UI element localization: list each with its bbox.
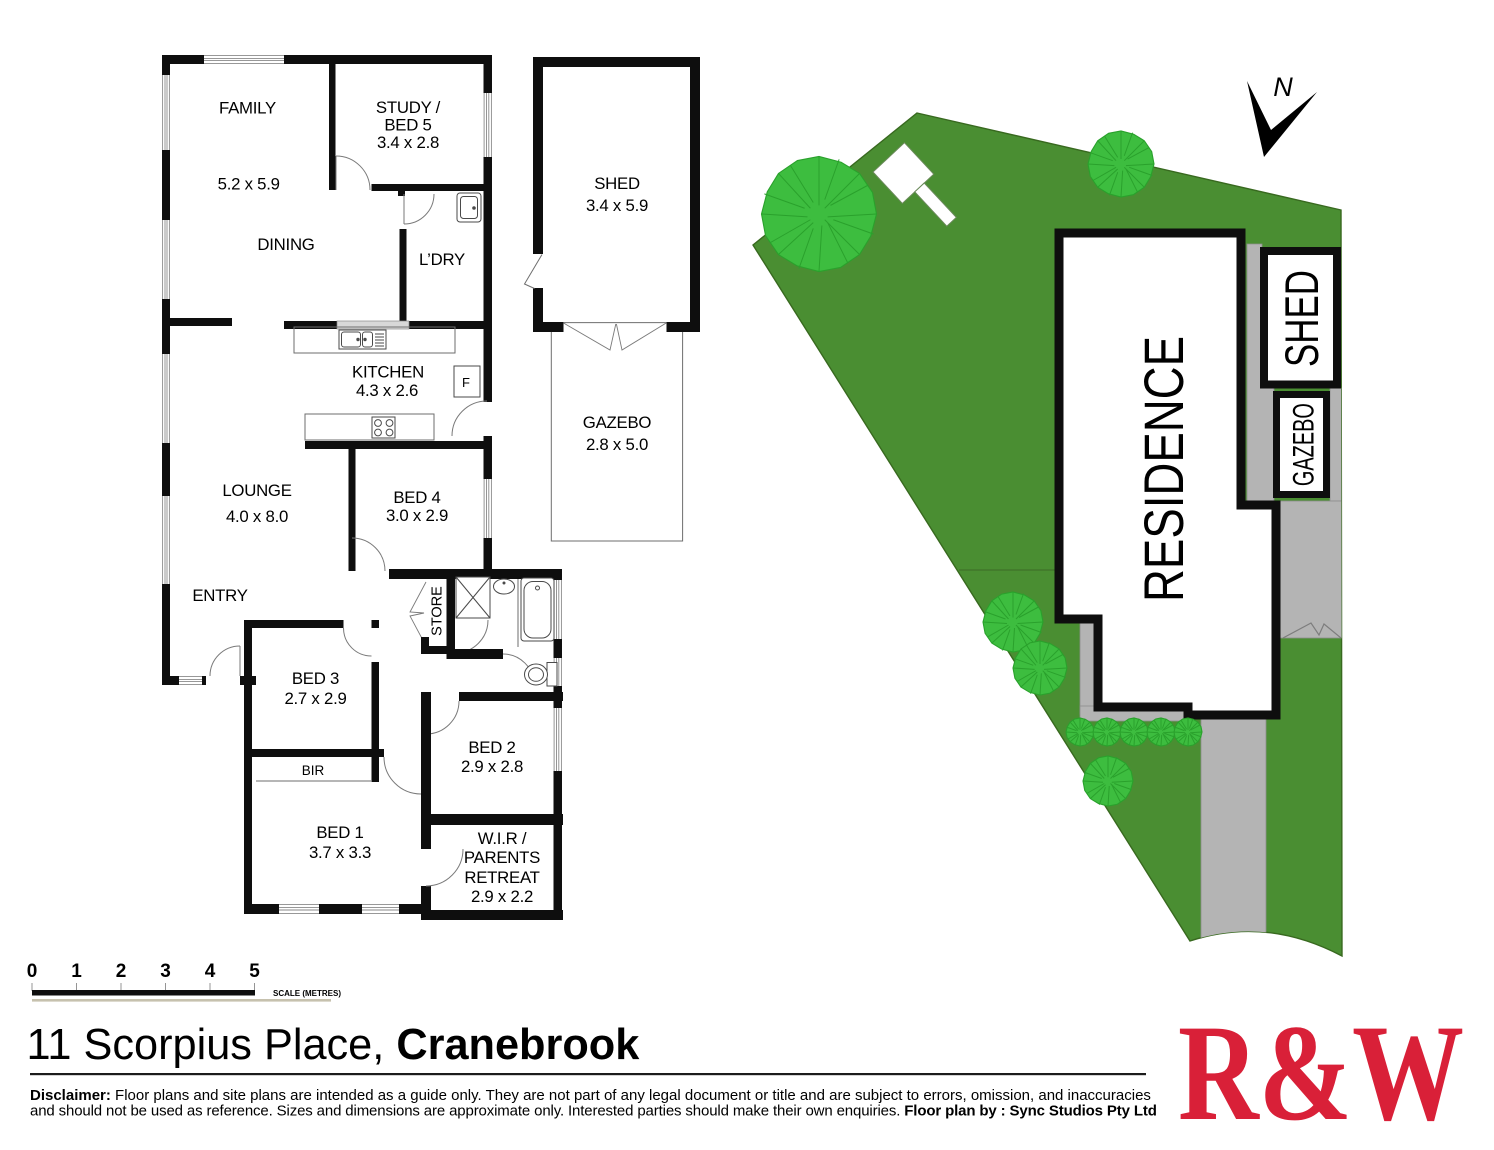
svg-text:5.2 x 5.9: 5.2 x 5.9 xyxy=(218,175,280,194)
svg-text:ENTRY: ENTRY xyxy=(192,586,247,605)
svg-text:4.0 x 8.0: 4.0 x 8.0 xyxy=(226,507,288,526)
svg-text:4.3 x 2.6: 4.3 x 2.6 xyxy=(356,381,418,400)
svg-text:RESIDENCE: RESIDENCE xyxy=(1132,336,1195,602)
svg-text:N: N xyxy=(1273,72,1293,102)
svg-text:and should not be used as refe: and should not be used as reference. Siz… xyxy=(30,1103,1157,1120)
svg-text:2: 2 xyxy=(116,961,127,982)
svg-text:PARENTS: PARENTS xyxy=(464,848,540,867)
svg-text:DINING: DINING xyxy=(257,235,314,254)
svg-text:3.7 x 3.3: 3.7 x 3.3 xyxy=(309,843,371,862)
svg-text:SCALE (METRES): SCALE (METRES) xyxy=(273,989,341,998)
svg-text:R&W: R&W xyxy=(1178,996,1464,1149)
svg-text:3.0 x 2.9: 3.0 x 2.9 xyxy=(386,506,448,525)
svg-text:0: 0 xyxy=(27,961,38,982)
svg-text:11 Scorpius Place, Cranebrook: 11 Scorpius Place, Cranebrook xyxy=(27,1021,641,1069)
svg-text:F: F xyxy=(462,375,470,390)
svg-text:3.4 x 2.8: 3.4 x 2.8 xyxy=(377,133,439,152)
svg-text:KITCHEN: KITCHEN xyxy=(352,363,424,382)
svg-text:W.I.R /: W.I.R / xyxy=(478,829,527,848)
svg-text:RETREAT: RETREAT xyxy=(464,868,539,887)
svg-text:BED 2: BED 2 xyxy=(468,738,515,757)
svg-text:2.9 x 2.2: 2.9 x 2.2 xyxy=(471,887,533,906)
svg-text:BIR: BIR xyxy=(302,763,325,778)
svg-text:BED 3: BED 3 xyxy=(292,669,339,688)
svg-text:STORE: STORE xyxy=(430,586,446,636)
svg-text:2.9 x 2.8: 2.9 x 2.8 xyxy=(461,757,523,776)
svg-text:SHED: SHED xyxy=(1275,270,1328,367)
svg-text:2.7 x 2.9: 2.7 x 2.9 xyxy=(284,689,346,708)
svg-text:4: 4 xyxy=(205,961,216,982)
svg-text:SHED: SHED xyxy=(594,174,640,193)
svg-text:BED 4: BED 4 xyxy=(393,488,440,507)
svg-text:Disclaimer: Floor plans and si: Disclaimer: Floor plans and site plans a… xyxy=(30,1087,1151,1104)
svg-text:3.4 x 5.9: 3.4 x 5.9 xyxy=(586,196,648,215)
svg-text:1: 1 xyxy=(71,961,82,982)
svg-text:STUDY /: STUDY / xyxy=(376,98,441,117)
svg-text:5: 5 xyxy=(249,961,260,982)
svg-text:BED 5: BED 5 xyxy=(384,116,431,135)
svg-text:BED 1: BED 1 xyxy=(316,823,363,842)
svg-text:2.8 x 5.0: 2.8 x 5.0 xyxy=(586,435,648,454)
svg-text:GAZEBO: GAZEBO xyxy=(1288,403,1321,486)
svg-text:L’DRY: L’DRY xyxy=(419,250,465,269)
svg-text:3: 3 xyxy=(160,961,171,982)
svg-text:FAMILY: FAMILY xyxy=(219,99,276,118)
svg-text:GAZEBO: GAZEBO xyxy=(583,413,652,432)
svg-text:LOUNGE: LOUNGE xyxy=(222,481,291,500)
